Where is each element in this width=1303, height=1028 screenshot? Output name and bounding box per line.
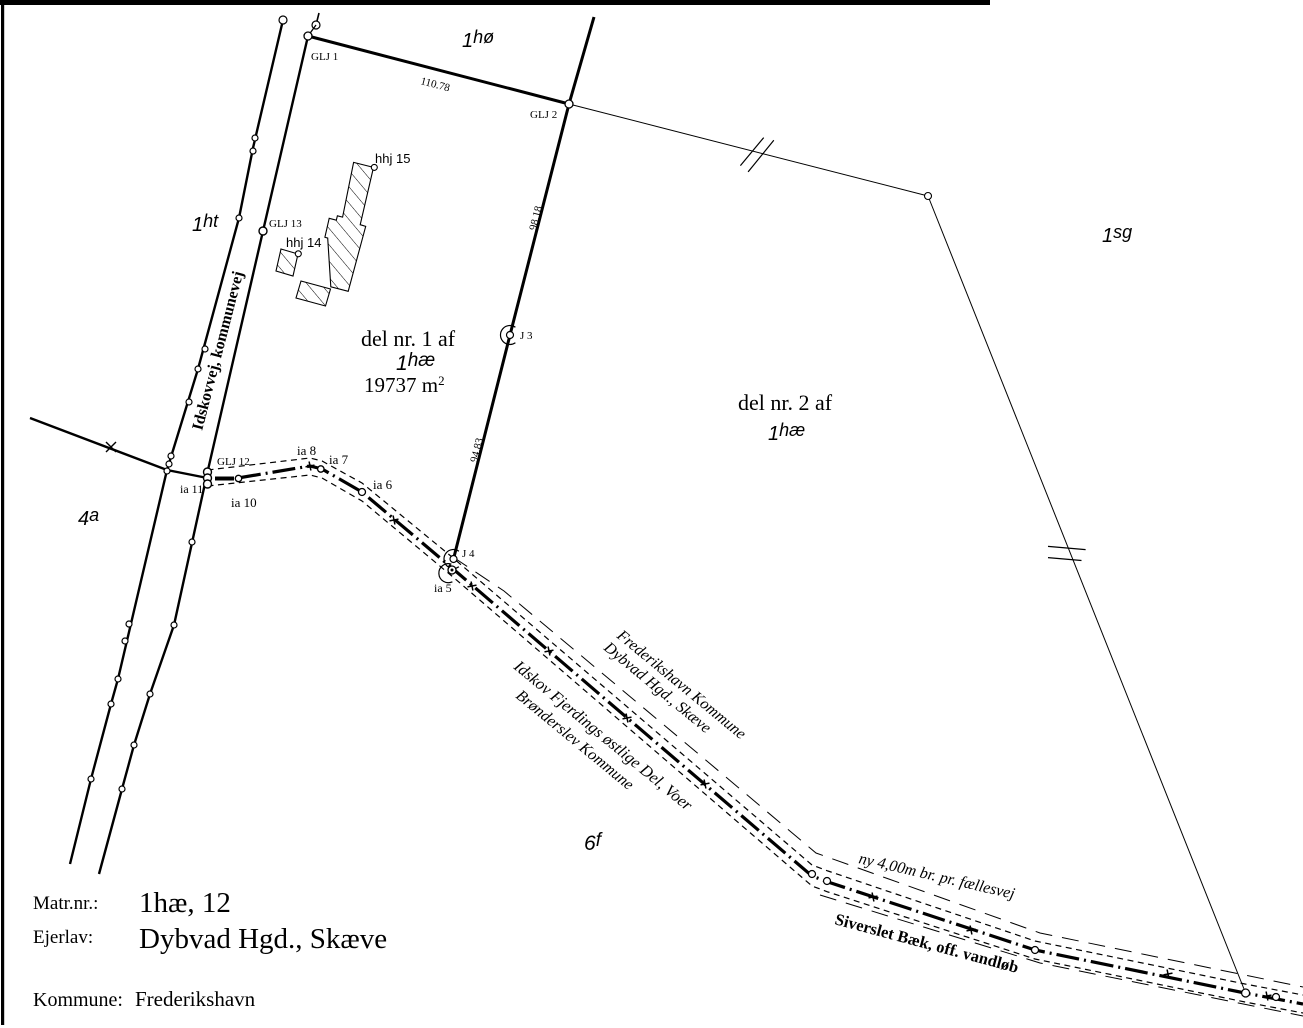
svg-text:GLJ 2: GLJ 2 [530, 109, 557, 121]
svg-text:del nr. 2 af: del nr. 2 af [738, 390, 833, 415]
svg-text:ia 5: ia 5 [434, 581, 452, 595]
svg-text:hhj 15: hhj 15 [375, 151, 410, 166]
svg-text:ia 8: ia 8 [297, 443, 316, 458]
svg-text:ia 11: ia 11 [180, 482, 203, 496]
svg-text:Matr.nr.:: Matr.nr.: [33, 893, 98, 914]
svg-text:GLJ 12: GLJ 12 [217, 456, 250, 468]
svg-text:19737 m2: 19737 m2 [364, 373, 445, 397]
svg-text:del nr. 1 af: del nr. 1 af [361, 326, 456, 351]
svg-text:ia 6: ia 6 [373, 477, 393, 492]
svg-text:Ejerlav:: Ejerlav: [33, 927, 93, 948]
svg-text:J 3: J 3 [520, 330, 533, 342]
svg-text:Kommune:: Kommune: [33, 989, 123, 1011]
svg-text:hhj 14: hhj 14 [286, 235, 321, 250]
svg-text:ia 7: ia 7 [329, 452, 349, 467]
svg-text:Frederikshavn: Frederikshavn [135, 987, 256, 1011]
svg-text:Dybvad Hgd., Skæve: Dybvad Hgd., Skæve [139, 923, 387, 955]
svg-text:ia 10: ia 10 [231, 495, 257, 510]
svg-text:J 4: J 4 [462, 548, 475, 560]
svg-text:GLJ 1: GLJ 1 [311, 51, 338, 63]
svg-text:1hæ, 12: 1hæ, 12 [139, 887, 231, 919]
svg-text:GLJ 13: GLJ 13 [269, 218, 302, 230]
